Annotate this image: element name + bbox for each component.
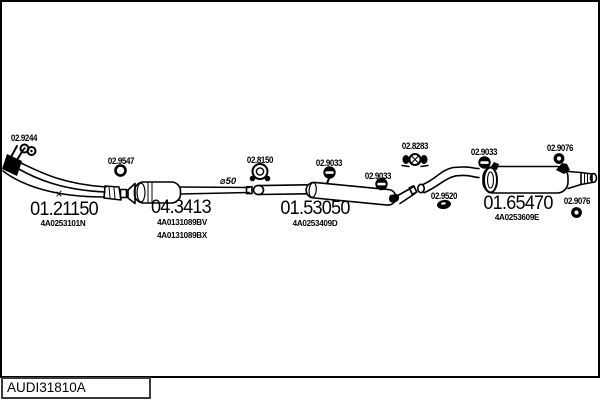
oe-ref-rear-silencer: 4A0253609E (495, 212, 539, 222)
ring-hanger-upper-icon (554, 153, 565, 164)
oval-gasket-icon (436, 199, 451, 210)
centre-pipe-shape (247, 185, 308, 195)
rear-silencer-shape (483, 162, 597, 193)
exhaust-system-diagram (0, 0, 600, 378)
fitting-label-ring-hanger-upper[interactable]: 02.9076 (547, 143, 573, 153)
ring-hanger-lower-icon (571, 207, 582, 218)
fitting-label-rubber-hanger-2[interactable]: 02.9033 (365, 171, 391, 181)
pipe-diameter-annotation: ⌀50 (220, 176, 236, 187)
fitting-label-rubber-hanger-1[interactable]: 02.9033 (316, 158, 342, 168)
oe-ref-front-pipe: 4A0253101N (41, 218, 86, 228)
drawing-code-box: AUDI31810A (1, 377, 151, 399)
oe-ref-centre-silencer: 4A0253409D (293, 218, 338, 228)
fitting-label-seal-ring[interactable]: 02.9547 (108, 156, 134, 166)
rubber-hanger-icon-1 (323, 166, 335, 178)
drawing-code: AUDI31810A (7, 380, 86, 395)
oe-ref-catalytic-converter-2: 4A0131089BX (157, 230, 207, 240)
seal-ring-icon (116, 166, 126, 176)
clamp-front-icon (250, 164, 271, 181)
fitting-label-rubber-hanger-3[interactable]: 02.9033 (471, 147, 497, 157)
front-pipe-shape (3, 163, 127, 200)
fitting-label-clamp-rear[interactable]: 02.8283 (402, 141, 428, 151)
clamp-rear-icon (402, 154, 428, 167)
fitting-label-clamp-front[interactable]: 02.8150 (247, 155, 273, 165)
front-flange-shape (2, 146, 23, 176)
fitting-label-ring-hanger-lower[interactable]: 02.9076 (564, 196, 590, 206)
rubber-hanger-icon-3 (478, 156, 490, 168)
fitting-label-front-gasket[interactable]: 02.9244 (11, 133, 37, 143)
part-number-centre-silencer[interactable]: 01.53050 (280, 198, 349, 220)
rear-pipe-shape (418, 167, 479, 193)
oe-ref-catalytic-converter-1: 4A0131089BV (157, 217, 207, 227)
fitting-label-oval-gasket[interactable]: 02.9520 (431, 191, 457, 201)
